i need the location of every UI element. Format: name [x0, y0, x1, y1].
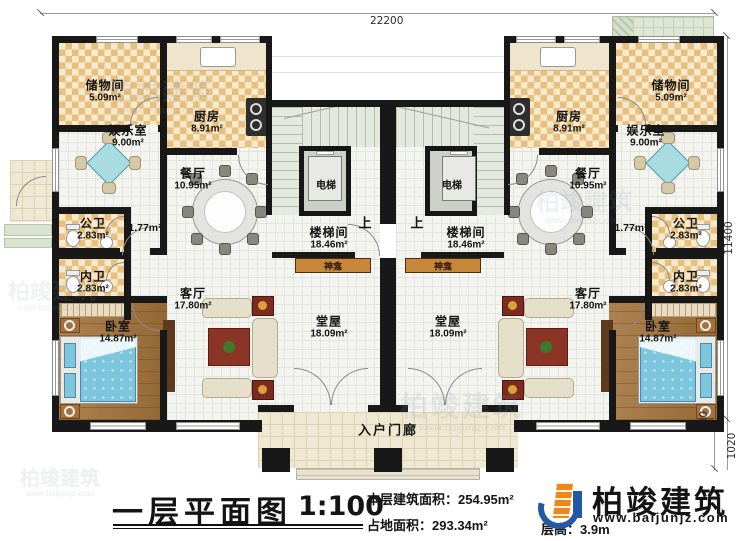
- room-label-living-left: 客厅17.80m²: [174, 288, 211, 313]
- wall: [504, 36, 510, 107]
- wall: [482, 405, 518, 412]
- shrine-label: 神龛: [434, 260, 452, 273]
- room-name: 储物间: [85, 80, 124, 93]
- wall: [368, 405, 408, 412]
- party-wall: [380, 258, 396, 412]
- pillow: [700, 373, 712, 398]
- room-label-corridor-right: 1.77m²: [614, 223, 647, 235]
- wall: [609, 248, 626, 255]
- window: [220, 36, 260, 43]
- room-name: 厨房: [191, 111, 223, 124]
- chair: [182, 206, 194, 218]
- room-label-public-bath-left: 公卫2.83m²: [77, 218, 109, 243]
- room-label-hall-left: 堂屋18.09m²: [310, 316, 347, 341]
- room-name: 堂屋: [310, 316, 347, 329]
- room-name: 堂屋: [429, 316, 466, 329]
- wall: [160, 132, 167, 255]
- watermark: 柏竣建筑www.baijunjz.com: [20, 468, 100, 499]
- wall: [609, 330, 616, 420]
- burner: [513, 103, 525, 115]
- dimension-top-width: 22200: [370, 15, 403, 27]
- lamp: [64, 406, 75, 417]
- room-label-public-bath-right: 公卫2.83m²: [670, 218, 702, 243]
- site-area-value: 293.34m²: [432, 518, 488, 533]
- window: [717, 340, 724, 396]
- room-area: 14.87m²: [99, 334, 136, 345]
- chair: [102, 182, 116, 194]
- room-label-dining-right: 餐厅10.95m²: [569, 168, 606, 193]
- chair: [634, 156, 646, 170]
- kitchen-sink: [540, 47, 576, 67]
- pillow: [700, 343, 712, 368]
- room-area: 17.80m²: [174, 301, 211, 312]
- chair: [517, 233, 529, 245]
- pillow: [64, 373, 76, 398]
- room-label-living-right: 客厅17.80m²: [569, 288, 606, 313]
- wall: [150, 248, 167, 255]
- room-area: 2.83m²: [77, 284, 109, 295]
- room-name: 卧室: [99, 321, 136, 334]
- room-label-private-bath-right: 内卫2.83m²: [670, 271, 702, 296]
- room-name: 内卫: [77, 271, 109, 284]
- floor-area-line: 本层建筑面积：254.95m²: [367, 489, 514, 508]
- sofa: [498, 318, 524, 378]
- room-name: 客厅: [569, 288, 606, 301]
- room-label-kitchen-right: 厨房8.91m²: [553, 111, 585, 136]
- brand-website: www.baijunjz.com: [593, 510, 729, 525]
- wall: [266, 36, 272, 107]
- sofa: [252, 318, 278, 378]
- room-label-entertainment-right: 娱乐室9.00m²: [626, 125, 665, 150]
- room-area: 10.95m²: [569, 181, 606, 192]
- window: [90, 422, 146, 430]
- wall: [59, 207, 131, 214]
- room-area: 8.91m²: [191, 124, 223, 135]
- burner: [250, 119, 262, 131]
- stair-flight: [272, 107, 302, 215]
- title-underline: [113, 528, 363, 529]
- wall: [421, 252, 504, 258]
- room-name: 储物间: [651, 80, 690, 93]
- plant-pot: [508, 301, 517, 310]
- lamp: [64, 320, 75, 331]
- room-area: 2.83m²: [670, 284, 702, 295]
- wall: [59, 296, 167, 303]
- plant: [540, 341, 552, 353]
- room-label-storage-left: 储物间5.09m²: [85, 80, 124, 105]
- room-area: 9.00m²: [108, 138, 147, 149]
- wall: [645, 207, 717, 214]
- wall: [609, 296, 717, 303]
- wall: [158, 125, 167, 132]
- room-label-bedroom-left: 卧室14.87m²: [99, 321, 136, 346]
- sofa-seat: [524, 378, 574, 398]
- dimension-lower-porch: 1020: [726, 426, 738, 466]
- window: [516, 36, 556, 43]
- plant: [223, 341, 235, 353]
- party-wall: [380, 100, 396, 224]
- room-area: 8.91m²: [553, 124, 585, 135]
- stair-up-label: 上: [358, 213, 371, 232]
- sofa-seat: [202, 378, 252, 398]
- room-name: 内卫: [670, 271, 702, 284]
- room-area: 18.09m²: [429, 329, 466, 340]
- site-area-label: 占地面积：: [367, 518, 432, 533]
- room-name: 娱乐室: [108, 125, 147, 138]
- logo-icon: [538, 479, 592, 537]
- room-area: 2.83m²: [670, 231, 702, 242]
- burner: [250, 103, 262, 115]
- window: [630, 422, 686, 430]
- wall: [160, 36, 167, 132]
- room-area: 17.80m²: [569, 301, 606, 312]
- room-area: 1.77m²: [128, 223, 161, 235]
- room-name: 餐厅: [569, 168, 606, 181]
- chair: [219, 165, 231, 177]
- window: [638, 36, 680, 43]
- window: [536, 422, 600, 430]
- side-steps: [4, 224, 52, 236]
- elevator-label: 电梯: [442, 177, 462, 192]
- dining-table-top: [530, 191, 572, 233]
- room-name: 公卫: [670, 218, 702, 231]
- room-label-corridor-left: 1.77m²: [128, 223, 161, 235]
- burner: [513, 119, 525, 131]
- roof-line: [272, 56, 504, 57]
- room-name: 厨房: [553, 111, 585, 124]
- watermark-url: www.baijunjz.com: [20, 490, 100, 499]
- room-area: 10.95m²: [174, 181, 211, 192]
- plant-pot: [258, 301, 267, 310]
- wall: [266, 100, 380, 107]
- wall: [645, 252, 717, 259]
- wall: [609, 132, 616, 255]
- window: [176, 36, 212, 43]
- chair: [75, 156, 87, 170]
- wall: [167, 148, 237, 155]
- window: [52, 340, 59, 396]
- elevator-label: 电梯: [316, 177, 336, 192]
- dimension-line-top: [40, 13, 715, 14]
- plant-pot: [508, 385, 517, 394]
- floor-plan-sheet: 电梯 电梯 储物间5.09m² 厨房8.91m² 娱乐室9.00m² 餐厅10.…: [0, 0, 750, 541]
- room-name: 餐厅: [174, 168, 211, 181]
- room-name: 楼梯间: [309, 227, 348, 240]
- elevator-vent: [316, 151, 334, 155]
- chair: [573, 233, 585, 245]
- site-area-line: 占地面积：293.34m²: [367, 515, 488, 534]
- room-label-stairwell-left: 楼梯间18.46m²: [309, 227, 348, 252]
- room-label-dining-left: 餐厅10.95m²: [174, 168, 211, 193]
- chair: [688, 156, 700, 170]
- wall: [59, 252, 131, 259]
- wall: [609, 36, 616, 132]
- room-area: 18.46m²: [309, 240, 348, 251]
- window: [176, 422, 240, 430]
- chair: [247, 233, 259, 245]
- floor-area-label: 本层建筑面积：: [367, 492, 458, 507]
- window: [96, 36, 138, 43]
- kitchen-sink: [200, 47, 236, 67]
- sofa-seat: [524, 298, 574, 318]
- room-label-entertainment-left: 娱乐室9.00m²: [108, 125, 147, 150]
- roof-line: [272, 72, 504, 73]
- chair: [545, 165, 557, 177]
- room-area: 14.87m²: [639, 334, 676, 345]
- room-area: 5.09m²: [651, 93, 690, 104]
- title-underline: [113, 524, 363, 526]
- wardrobe: [648, 303, 716, 317]
- chair: [545, 243, 557, 255]
- room-name: 公卫: [77, 218, 109, 231]
- stair-flight: [396, 107, 474, 147]
- room-area: 5.09m²: [85, 93, 124, 104]
- dining-table-top: [204, 191, 246, 233]
- stair-up-label: 上: [410, 213, 423, 232]
- room-area: 2.83m²: [77, 231, 109, 242]
- room-label-private-bath-left: 内卫2.83m²: [77, 271, 109, 296]
- room-label-bedroom-right: 卧室14.87m²: [639, 321, 676, 346]
- chair: [219, 243, 231, 255]
- porch-column: [486, 448, 514, 472]
- room-area: 9.00m²: [626, 138, 665, 149]
- window: [52, 148, 59, 192]
- room-area: 18.09m²: [310, 329, 347, 340]
- plant-pot: [258, 385, 267, 394]
- window: [564, 36, 600, 43]
- shrine-label: 神龛: [324, 260, 342, 273]
- wardrobe: [60, 303, 128, 317]
- wall: [539, 148, 609, 155]
- room-name: 娱乐室: [626, 125, 665, 138]
- wall: [272, 252, 355, 258]
- room-label-stairwell-right: 楼梯间18.46m²: [446, 227, 485, 252]
- chair: [191, 233, 203, 245]
- chair: [581, 206, 593, 218]
- wall: [396, 100, 510, 107]
- logo-building-blue: [573, 491, 582, 518]
- watermark-text: 柏竣建筑: [20, 468, 100, 490]
- stair-flight: [474, 107, 504, 215]
- porch-column: [374, 448, 402, 472]
- window: [717, 148, 724, 192]
- dimension-right-height: 11400: [723, 216, 735, 260]
- room-name: 卧室: [639, 321, 676, 334]
- wall: [160, 330, 167, 420]
- wall: [609, 125, 618, 132]
- stair-flight: [302, 107, 380, 147]
- side-steps: [4, 238, 52, 248]
- chair: [129, 156, 141, 170]
- room-label-hall-right: 堂屋18.09m²: [429, 316, 466, 341]
- pillow: [64, 343, 76, 368]
- porch-column: [262, 448, 290, 472]
- lamp: [700, 320, 711, 331]
- room-name: 楼梯间: [446, 227, 485, 240]
- porch-label: 入户门廊: [358, 420, 418, 439]
- room-name: 客厅: [174, 288, 211, 301]
- room-area: 1.77m²: [614, 223, 647, 235]
- chair: [661, 182, 675, 194]
- room-area: 18.46m²: [446, 240, 485, 251]
- elevator-vent: [450, 151, 468, 155]
- floor-area-value: 254.95m²: [458, 492, 514, 507]
- wall: [258, 405, 294, 412]
- room-label-kitchen-left: 厨房8.91m²: [191, 111, 223, 136]
- room-label-storage-right: 储物间5.09m²: [651, 80, 690, 105]
